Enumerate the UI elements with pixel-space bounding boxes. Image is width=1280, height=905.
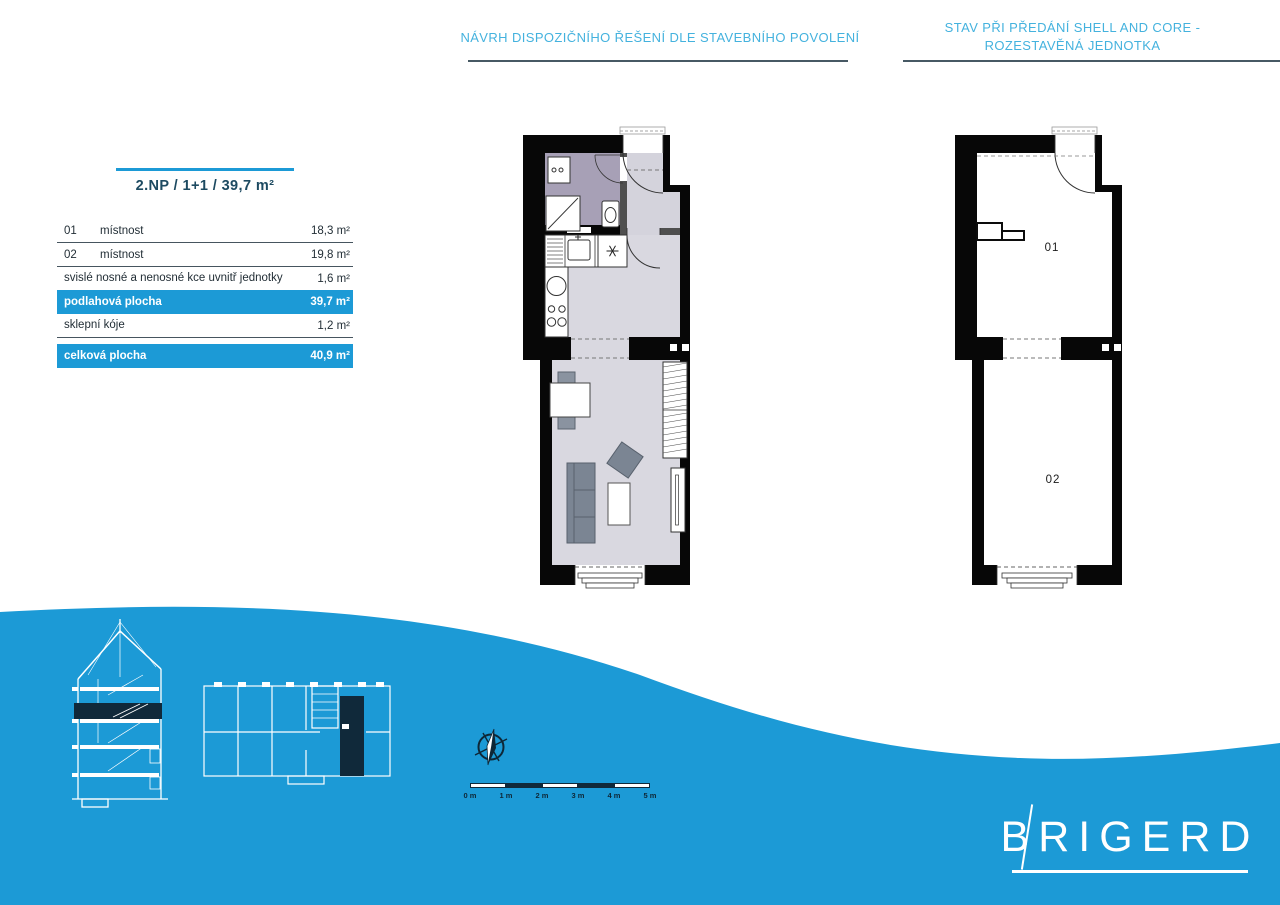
sink-icon [568,240,590,260]
coffee-table [608,483,630,525]
unit-summary-table: 2.NP / 1+1 / 39,7 m² 01 místnost 18,3 m²… [57,168,353,368]
scale-segment [470,783,506,788]
scale-label: 1 m [493,791,519,800]
table-row: sklepní kóje 1,2 m² [57,314,353,338]
row-value: 18,3 m² [311,225,353,237]
scale-segment [542,783,578,788]
header-left-title: NÁVRH DISPOZIČNÍHO ŘEŠENÍ DLE STAVEBNÍHO… [440,29,880,47]
scale-segment [506,783,542,788]
shaft [1114,344,1121,351]
scale-label: 0 m [457,791,483,800]
table-row: 01 místnost 18,3 m² [57,219,353,243]
row-value: 39,7 m² [310,296,353,308]
row-label: podlahová plocha [57,296,162,308]
brand-logo: BRIGERD [1000,808,1260,873]
logo-rule [1012,870,1248,873]
row-value: 1,6 m² [317,273,353,285]
title-accent-line [116,168,294,171]
row-code: 02 [57,249,98,261]
building-section-sketch [58,617,193,812]
toilet-icon [602,201,619,227]
table-row-highlight: celková plocha 40,9 m² [57,344,353,368]
row-label: celková plocha [57,350,146,362]
shaft [1102,344,1109,351]
window [575,565,645,588]
floor-plan-shell: 01 02 [952,125,1132,590]
row-value: 19,8 m² [311,249,353,261]
scale-segment [578,783,614,788]
window [997,565,1077,588]
header-right-title: STAV PŘI PŘEDÁNÍ SHELL AND CORE - ROZEST… [905,19,1240,55]
table-row-highlight: podlahová plocha 39,7 m² [57,290,353,314]
shower-icon [546,196,580,231]
table-row: 02 místnost 19,8 m² [57,243,353,267]
scale-segment [614,783,650,788]
walls [955,135,1122,585]
row-code: 01 [57,225,98,237]
sideboard [671,468,685,532]
basin-icon [547,277,566,296]
header-right-line1: STAV PŘI PŘEDÁNÍ SHELL AND CORE - [905,19,1240,37]
header-left-rule [468,60,848,62]
logo-text: BRIGERD [1000,808,1260,866]
unit-rows: 01 místnost 18,3 m² 02 místnost 19,8 m² … [57,219,353,368]
header-right-rule [903,60,1280,62]
scale-label: 5 m [637,791,663,800]
dining-table [550,383,590,417]
scale-label: 3 m [565,791,591,800]
highlighted-unit [340,696,364,776]
floor-plan-detailed [520,125,700,590]
header-right-line2: ROZESTAVĚNÁ JEDNOTKA [905,37,1240,55]
row-label: svislé nosné a nenosné kce uvnitř jednot… [57,272,283,285]
duct-block [977,223,1024,240]
scale-bar: 0 m 1 m 2 m 3 m 4 m 5 m [470,783,670,803]
washing-machine-icon [548,157,570,183]
scale-label: 2 m [529,791,555,800]
page: NÁVRH DISPOZIČNÍHO ŘEŠENÍ DLE STAVEBNÍHO… [0,0,1280,905]
unit-title: 2.NP / 1+1 / 39,7 m² [57,178,353,194]
row-label: místnost [98,225,143,237]
table-row: svislé nosné a nenosné kce uvnitř jednot… [57,267,353,290]
room-label-02: 02 [1046,474,1061,486]
wardrobe [663,362,687,458]
row-label: místnost [98,249,143,261]
shaft [682,344,689,351]
row-value: 1,2 m² [317,320,353,332]
passage-dashes [1003,339,1061,358]
building-floorplan-sketch [200,672,395,787]
highlighted-floor [74,703,162,719]
row-label: sklepní kóje [57,319,125,332]
row-value: 40,9 m² [310,350,353,362]
room-label-01: 01 [1045,242,1060,254]
shaft [670,344,677,351]
scale-label: 4 m [601,791,627,800]
sofa [567,463,595,543]
compass-icon [474,726,510,768]
